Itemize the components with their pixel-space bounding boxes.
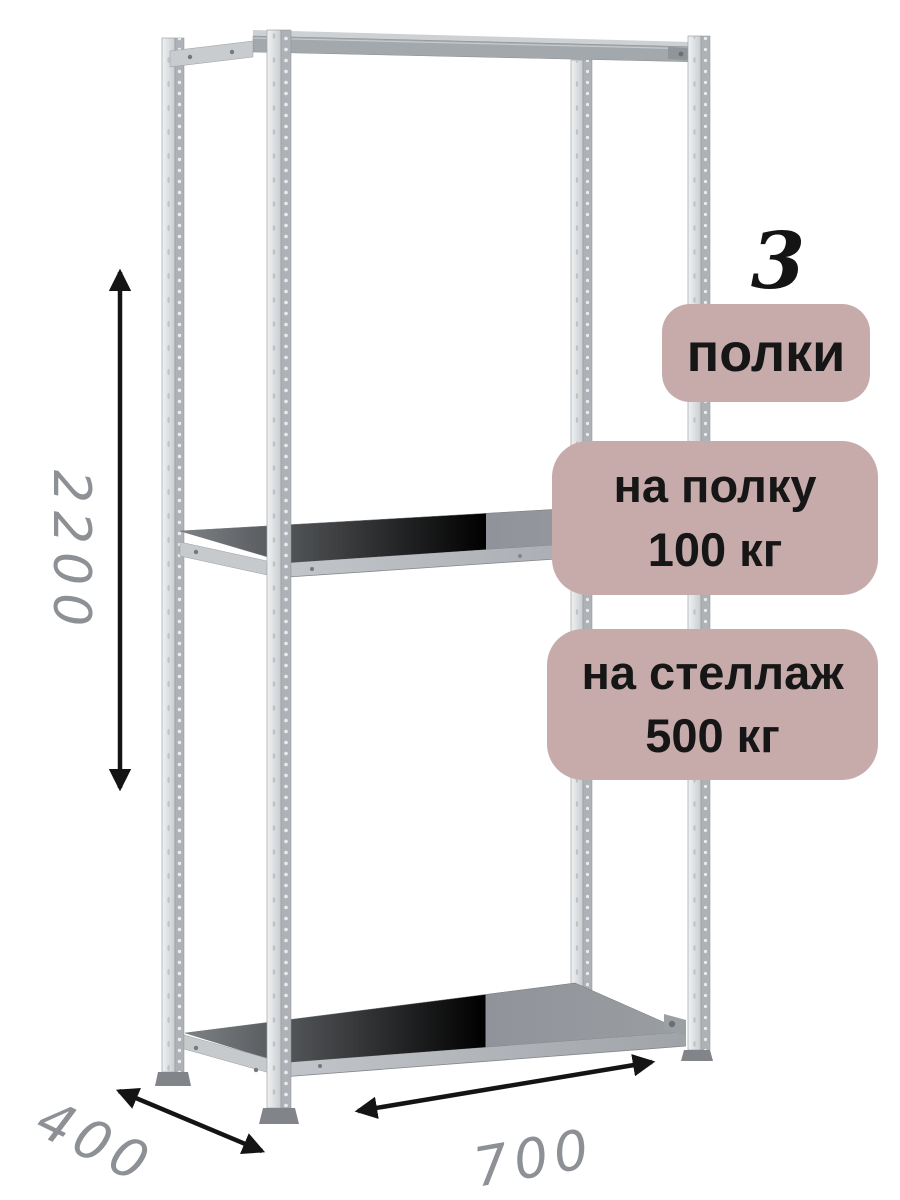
width-arrow bbox=[358, 1062, 652, 1111]
per-rack-load-value: 500 кг bbox=[645, 705, 780, 767]
rack-illustration bbox=[0, 0, 900, 1200]
product-image: 2200 400 700 3 полки на полку 100 кг на … bbox=[0, 0, 900, 1200]
top-shelf bbox=[170, 30, 702, 67]
per-shelf-load-value: 100 кг bbox=[648, 518, 783, 582]
shelf-count-number: 3 bbox=[751, 223, 805, 301]
per-rack-load-text: на стеллаж bbox=[581, 642, 843, 704]
shelf-count-label: полки bbox=[687, 322, 846, 384]
shelf-count-badge: полки bbox=[662, 304, 870, 402]
post-back-left bbox=[155, 38, 191, 1086]
per-rack-load-badge: на стеллаж 500 кг bbox=[547, 629, 878, 780]
height-dimension-label: 2200 bbox=[41, 470, 101, 634]
bottom-shelf bbox=[184, 983, 686, 1077]
foot-front-left bbox=[259, 1108, 299, 1124]
foot-front-right bbox=[681, 1050, 713, 1061]
foot-back-left bbox=[155, 1072, 191, 1086]
per-shelf-load-text: на полку bbox=[613, 454, 816, 518]
per-shelf-load-badge: на полку 100 кг bbox=[552, 441, 878, 595]
